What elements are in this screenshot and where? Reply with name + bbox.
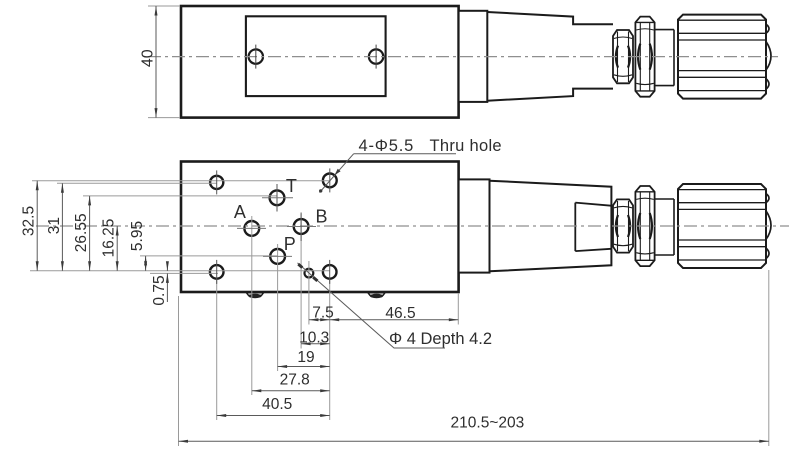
svg-text:31: 31 (46, 217, 63, 234)
svg-text:27.8: 27.8 (280, 371, 310, 388)
svg-text:5.95: 5.95 (129, 221, 146, 251)
svg-text:40: 40 (139, 49, 156, 67)
svg-text:10.3: 10.3 (299, 329, 329, 346)
svg-text:7.5: 7.5 (312, 304, 334, 321)
svg-text:T: T (286, 176, 297, 196)
svg-text:26.55: 26.55 (73, 213, 90, 252)
svg-text:46.5: 46.5 (385, 305, 415, 322)
svg-text:210.5~203: 210.5~203 (451, 415, 525, 432)
svg-text:P: P (284, 234, 296, 254)
svg-text:A: A (234, 202, 246, 222)
svg-text:Φ 4 Depth 4.2: Φ 4 Depth 4.2 (389, 330, 492, 348)
svg-text:32.5: 32.5 (21, 206, 38, 236)
svg-text:4-Φ5.5: 4-Φ5.5 (359, 137, 415, 155)
svg-text:0.75: 0.75 (151, 275, 168, 305)
svg-text:40.5: 40.5 (262, 396, 292, 413)
svg-text:Thru hole: Thru hole (430, 137, 502, 155)
svg-text:16.25: 16.25 (101, 219, 118, 258)
svg-text:B: B (315, 207, 327, 227)
svg-text:19: 19 (297, 349, 314, 366)
